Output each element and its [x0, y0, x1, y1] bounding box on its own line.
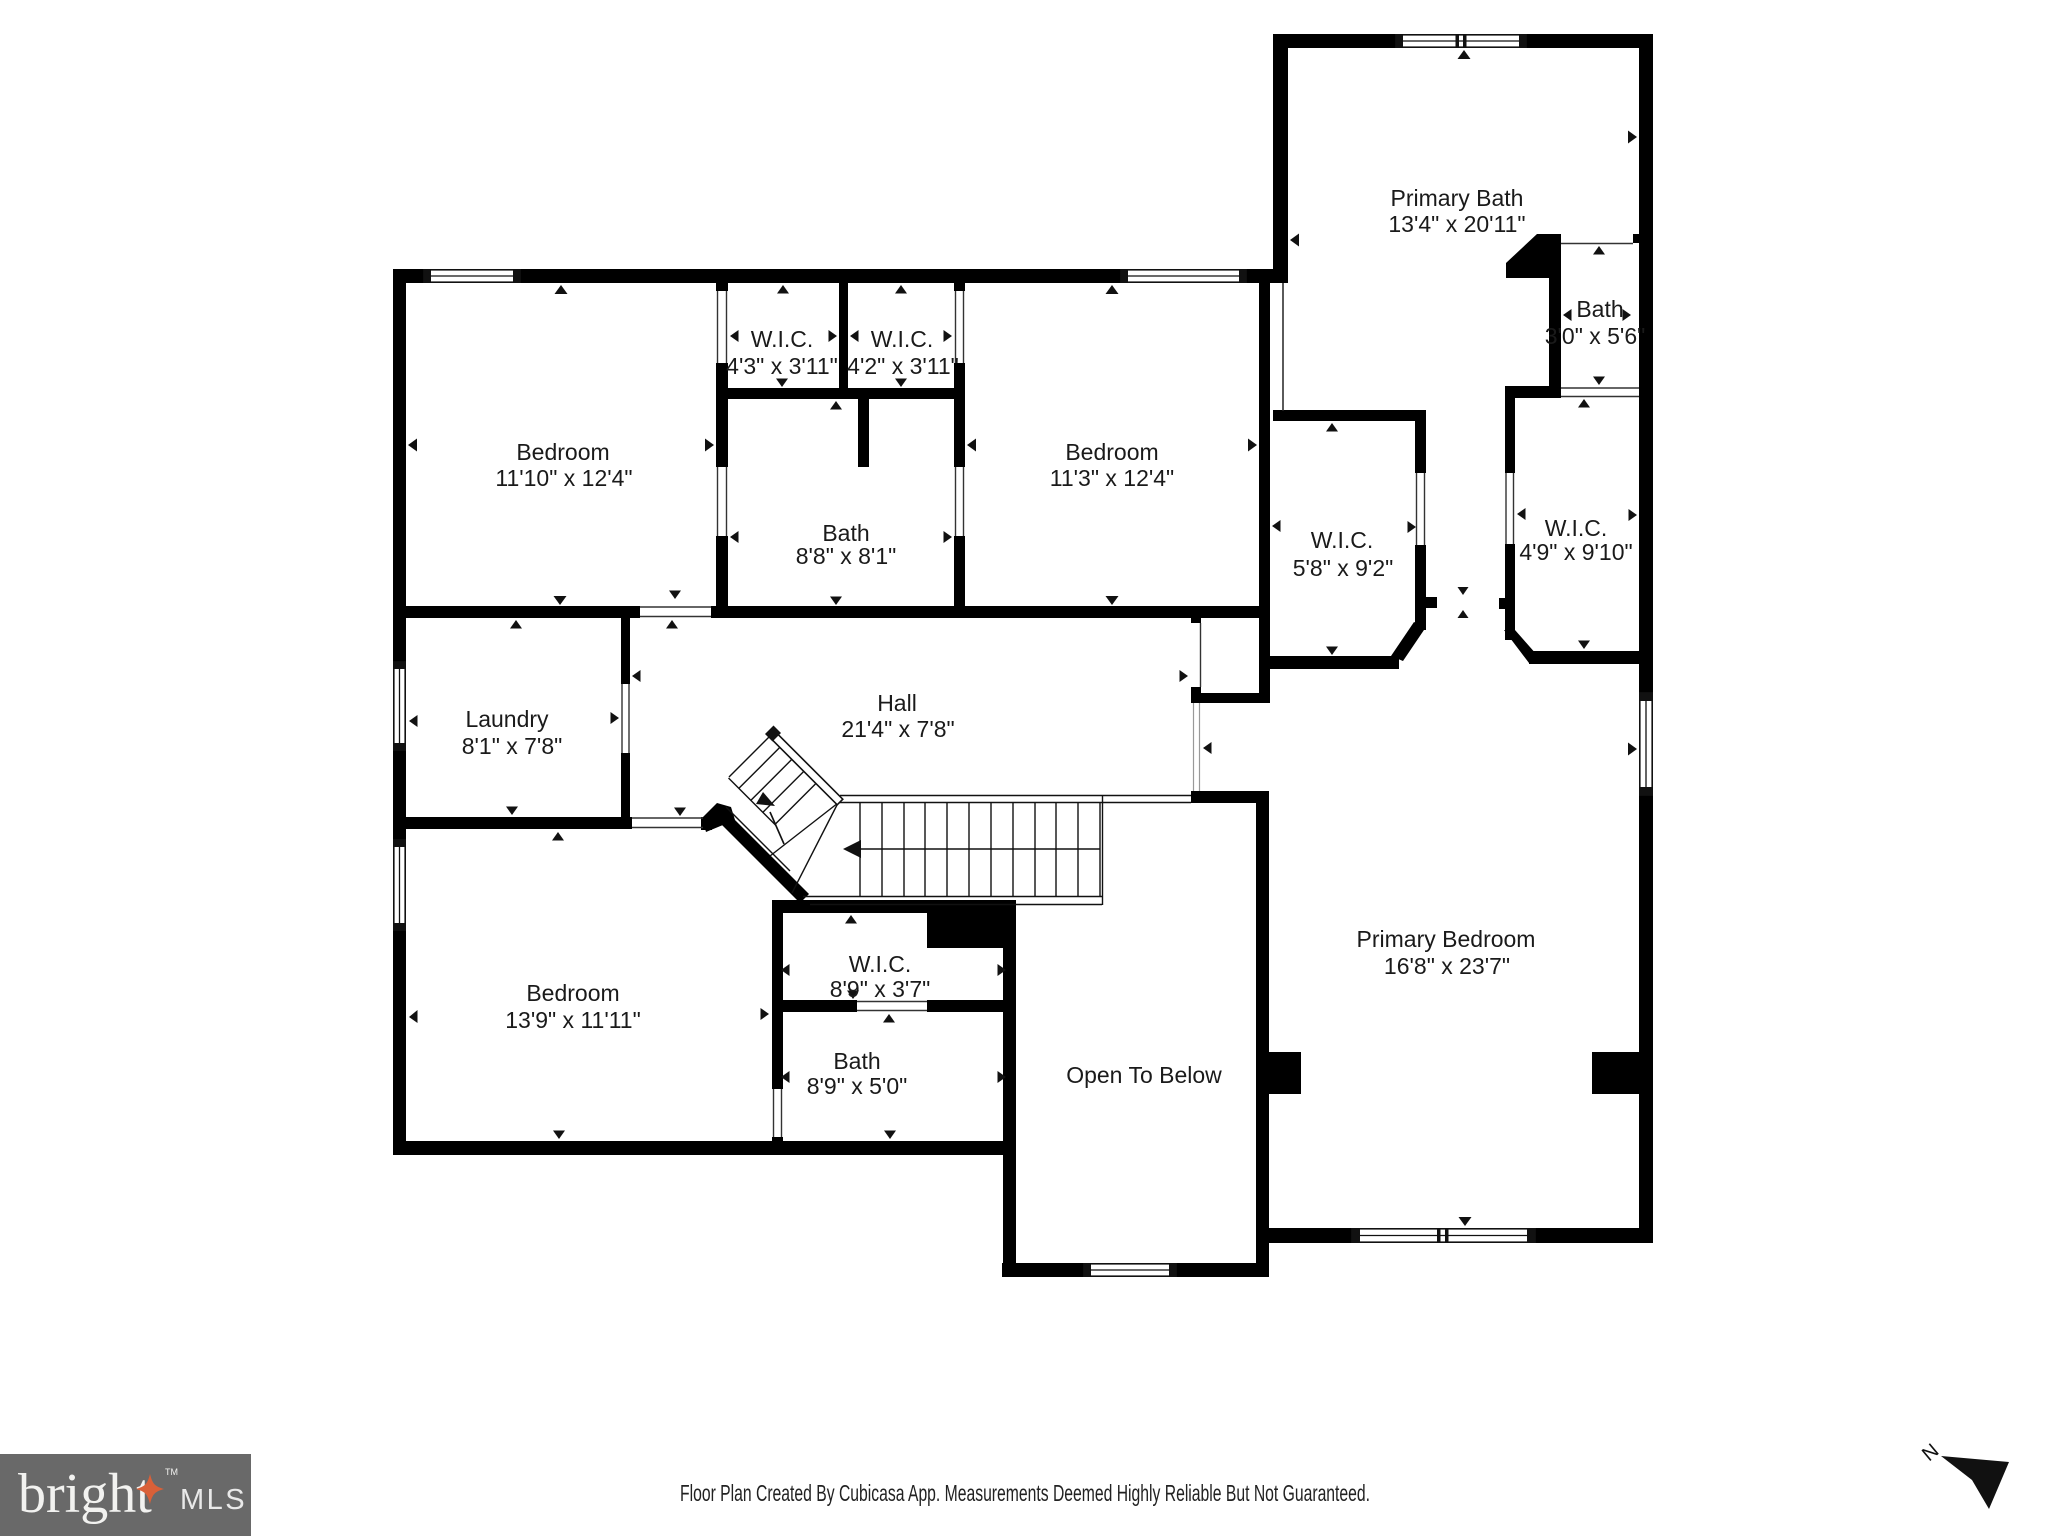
svg-text:11'10" x 12'4": 11'10" x 12'4" — [495, 465, 632, 491]
svg-text:Open To Below: Open To Below — [1066, 1062, 1222, 1088]
svg-text:3'0" x 5'6": 3'0" x 5'6" — [1545, 323, 1646, 349]
svg-text:4'2" x 3'11": 4'2" x 3'11" — [847, 353, 959, 379]
svg-text:21'4" x 7'8": 21'4" x 7'8" — [841, 716, 954, 742]
svg-text:4'9" x 9'10": 4'9" x 9'10" — [1519, 539, 1632, 565]
svg-text:13'4" x 20'11": 13'4" x 20'11" — [1388, 211, 1525, 237]
svg-text:TM: TM — [165, 1467, 178, 1477]
svg-text:13'9" x 11'11": 13'9" x 11'11" — [505, 1007, 641, 1033]
svg-text:8'9" x 5'0": 8'9" x 5'0" — [807, 1073, 908, 1099]
svg-text:Bedroom: Bedroom — [526, 980, 619, 1006]
svg-text:Hall: Hall — [877, 690, 917, 716]
svg-text:bright: bright — [18, 1463, 152, 1525]
svg-text:W.I.C.: W.I.C. — [871, 326, 934, 352]
svg-text:11'3" x 12'4": 11'3" x 12'4" — [1050, 465, 1174, 491]
svg-text:W.I.C.: W.I.C. — [1311, 527, 1374, 553]
svg-text:Primary Bedroom: Primary Bedroom — [1357, 926, 1536, 952]
svg-text:W.I.C.: W.I.C. — [1545, 515, 1608, 541]
svg-text:5'8" x 9'2": 5'8" x 9'2" — [1293, 555, 1394, 581]
svg-text:Bedroom: Bedroom — [516, 439, 609, 465]
svg-text:4'3" x 3'11": 4'3" x 3'11" — [726, 353, 838, 379]
svg-text:8'8" x 8'1": 8'8" x 8'1" — [796, 543, 897, 569]
svg-text:Floor Plan Created By Cubicasa: Floor Plan Created By Cubicasa App. Meas… — [680, 1480, 1370, 1506]
svg-text:MLS: MLS — [180, 1484, 247, 1516]
svg-text:16'8" x 23'7": 16'8" x 23'7" — [1384, 953, 1510, 979]
svg-text:Bath: Bath — [833, 1048, 880, 1074]
svg-text:W.I.C.: W.I.C. — [751, 326, 814, 352]
svg-text:8'1" x 7'8": 8'1" x 7'8" — [462, 733, 563, 759]
svg-text:8'9" x 3'7": 8'9" x 3'7" — [830, 976, 931, 1002]
svg-text:Bedroom: Bedroom — [1065, 439, 1158, 465]
svg-text:W.I.C.: W.I.C. — [849, 951, 912, 977]
svg-text:Bath: Bath — [1576, 296, 1623, 322]
svg-text:Laundry: Laundry — [465, 706, 549, 732]
svg-text:Primary Bath: Primary Bath — [1391, 185, 1524, 211]
